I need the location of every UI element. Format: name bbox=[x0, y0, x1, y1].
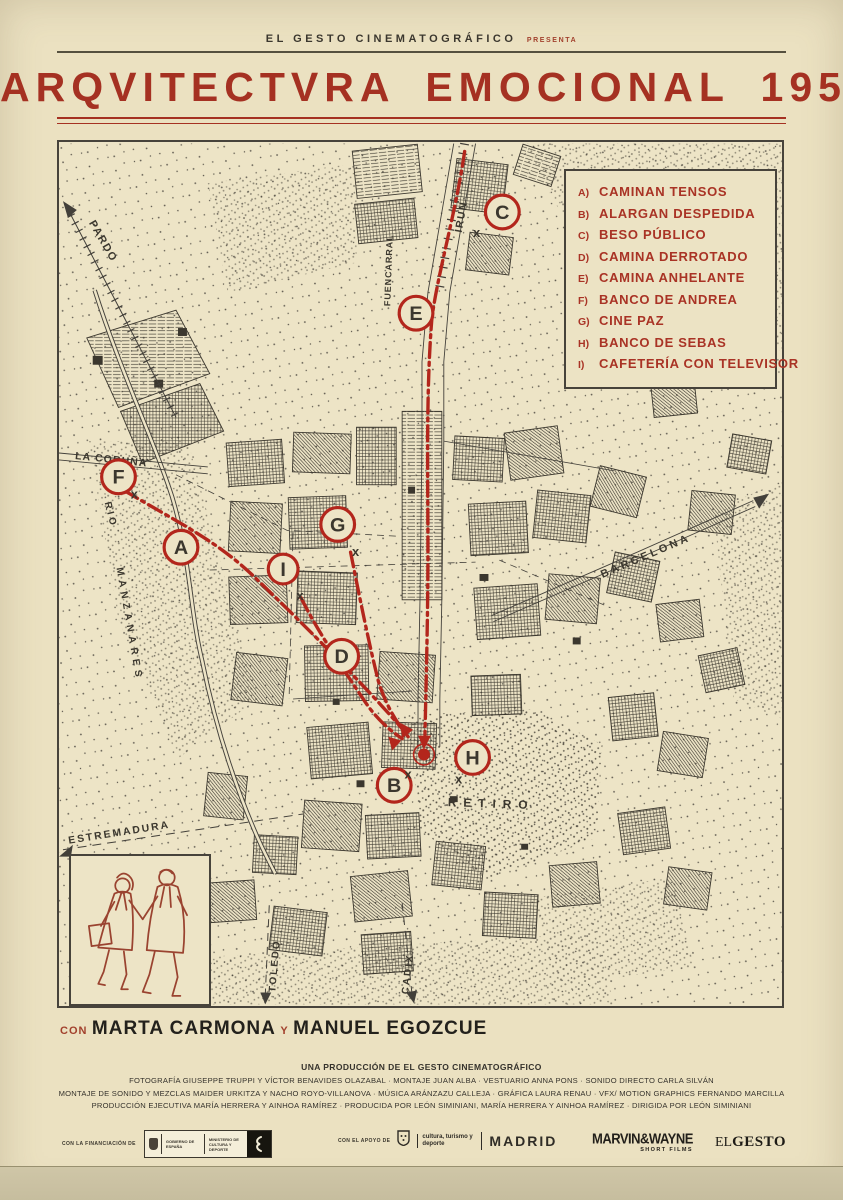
svg-text:C: C bbox=[495, 202, 509, 224]
legend-item: B)ALARGAN DESPEDIDA bbox=[578, 206, 765, 221]
credit-line: FOTOGRAFÍA GIUSEPPE TRUPPI Y VÍCTOR BENA… bbox=[0, 1075, 843, 1088]
financing-group: CON LA FINANCIACIÓN DE GOBIERNO DE ESPAÑ… bbox=[62, 1130, 272, 1158]
cast-con-label: CON bbox=[60, 1025, 87, 1037]
legend-item: I)CAFETERÍA CON TELEVISOR bbox=[578, 356, 765, 371]
x-mark-c: x bbox=[473, 225, 481, 240]
support-group: CON EL APOYO DE cultura, turismo y depor… bbox=[338, 1130, 557, 1151]
studio-name: EL GESTO CINEMATOGRÁFICO bbox=[266, 33, 517, 45]
legend-item: H)BANCO DE SEBAS bbox=[578, 335, 765, 350]
legend-item: D)CAMINA DERROTADO bbox=[578, 249, 765, 264]
svg-text:H: H bbox=[465, 747, 479, 769]
legend-label: BANCO DE ANDREA bbox=[599, 292, 738, 307]
legend-key: D) bbox=[578, 252, 599, 264]
x-mark-h: x bbox=[455, 771, 463, 786]
presents-label: PRESENTA bbox=[527, 37, 577, 44]
footer-logos: CON LA FINANCIACIÓN DE GOBIERNO DE ESPAÑ… bbox=[0, 1124, 843, 1164]
studio-line: EL GESTO CINEMATOGRÁFICO PRESENTA bbox=[0, 29, 843, 47]
legend-label: BANCO DE SEBAS bbox=[599, 335, 727, 350]
madrid-dept-label: cultura, turismo y deporte bbox=[417, 1134, 474, 1148]
x-mark-i: x bbox=[296, 588, 304, 603]
x-mark-b: x bbox=[405, 766, 413, 781]
credit-line: MONTAJE DE SONIDO Y MEZCLAS MAIDER URKIT… bbox=[0, 1088, 843, 1101]
legend-key: G) bbox=[578, 316, 599, 328]
poster-bottom-edge bbox=[0, 1166, 843, 1200]
marker-a: A bbox=[164, 530, 198, 564]
credits-block: UNA PRODUCCIÓN DE EL GESTO CINEMATOGRÁFI… bbox=[0, 1062, 843, 1113]
marker-d: D bbox=[325, 639, 359, 673]
credit-line: PRODUCCIÓN EJECUTIVA MARÍA HERRERA Y AIN… bbox=[0, 1100, 843, 1113]
marker-e: E bbox=[399, 296, 433, 330]
poster-title: ARQVITECTVRA EMOCIONAL 1959 bbox=[0, 64, 843, 111]
svg-text:I: I bbox=[280, 559, 286, 581]
title-rule-bottom bbox=[57, 123, 786, 124]
marker-h: H bbox=[456, 741, 490, 775]
el-gesto-logo: ELGESTO bbox=[715, 1133, 786, 1151]
legend-box: A)CAMINAN TENSOS B)ALARGAN DESPEDIDA C)B… bbox=[564, 169, 777, 389]
cast-line: CON MARTA CARMONA Y MANUEL EGOZCUE bbox=[60, 1018, 487, 1040]
cast-name-2: MANUEL EGOZCUE bbox=[293, 1018, 487, 1039]
svg-text:A: A bbox=[174, 537, 188, 559]
madrid-wordmark: MADRID bbox=[489, 1133, 557, 1149]
legend-item: G)CINE PAZ bbox=[578, 313, 765, 328]
marker-g: G bbox=[321, 508, 355, 542]
svg-text:G: G bbox=[330, 514, 345, 536]
legend-label: CAFETERÍA CON TELEVISOR bbox=[599, 356, 799, 371]
header-rule bbox=[57, 51, 786, 53]
legend-key: F) bbox=[578, 295, 599, 307]
x-mark-g: x bbox=[352, 544, 360, 559]
title-rule-top bbox=[57, 117, 786, 119]
legend-label: ALARGAN DESPEDIDA bbox=[599, 206, 755, 221]
short-films-label: SHORT FILMS bbox=[592, 1147, 693, 1153]
legend-key: C) bbox=[578, 230, 599, 242]
marvin-wayne-wordmark: MARVIN&WAYNE bbox=[592, 1130, 693, 1147]
svg-text:B: B bbox=[387, 775, 401, 797]
support-label: CON EL APOYO DE bbox=[338, 1138, 390, 1144]
city-map: PARDO FUENCARRAL IRUN LA CORUÑA RIO MANZ… bbox=[57, 140, 784, 1008]
legend-item: A)CAMINAN TENSOS bbox=[578, 184, 765, 199]
destination-dot bbox=[418, 749, 430, 761]
divider bbox=[481, 1132, 482, 1150]
legend-item: E)CAMINA ANHELANTE bbox=[578, 270, 765, 285]
svg-text:E: E bbox=[409, 303, 422, 325]
legend-label: CAMINA DERROTADO bbox=[599, 249, 748, 264]
legend-key: B) bbox=[578, 209, 599, 221]
legend-item: C)BESO PÚBLICO bbox=[578, 227, 765, 242]
legend-key: H) bbox=[578, 338, 599, 350]
film-poster: EL GESTO CINEMATOGRÁFICO PRESENTA ARQVIT… bbox=[0, 0, 843, 1200]
distributor-logo: MARVIN&WAYNE SHORT FILMS bbox=[592, 1131, 693, 1153]
icaa-logo-icon bbox=[247, 1131, 271, 1157]
cast-name-1: MARTA CARMONA bbox=[92, 1018, 276, 1039]
gov-line-1: GOBIERNO DE ESPAÑA bbox=[166, 1139, 200, 1149]
brand-el: EL bbox=[715, 1135, 732, 1150]
credit-production: UNA PRODUCCIÓN DE EL GESTO CINEMATOGRÁFI… bbox=[0, 1062, 843, 1072]
brand-gesto: GESTO bbox=[732, 1134, 786, 1150]
legend-label: BESO PÚBLICO bbox=[599, 227, 706, 242]
legend-key: E) bbox=[578, 273, 599, 285]
madrid-shield-icon bbox=[397, 1130, 410, 1151]
couple-walking-illustration bbox=[71, 856, 209, 1004]
gov-line-2: MINISTERIO DE CULTURA Y DEPORTE bbox=[209, 1137, 243, 1152]
legend-label: CAMINA ANHELANTE bbox=[599, 270, 745, 285]
cast-y-label: Y bbox=[280, 1025, 288, 1037]
couple-illustration-box bbox=[69, 854, 211, 1006]
marker-i: I bbox=[268, 554, 298, 584]
x-mark-f: x bbox=[131, 487, 139, 502]
financing-label: CON LA FINANCIACIÓN DE bbox=[62, 1141, 136, 1147]
svg-text:F: F bbox=[112, 467, 124, 489]
marker-c: C bbox=[485, 195, 519, 229]
spain-coat-of-arms-icon bbox=[149, 1138, 158, 1150]
legend-item: F)BANCO DE ANDREA bbox=[578, 292, 765, 307]
svg-text:D: D bbox=[334, 646, 348, 668]
gobierno-espana-logo: GOBIERNO DE ESPAÑA MINISTERIO DE CULTURA… bbox=[144, 1130, 272, 1158]
legend-key: I) bbox=[578, 359, 599, 371]
legend-key: A) bbox=[578, 187, 599, 199]
legend-label: CINE PAZ bbox=[599, 313, 664, 328]
legend-label: CAMINAN TENSOS bbox=[599, 184, 727, 199]
